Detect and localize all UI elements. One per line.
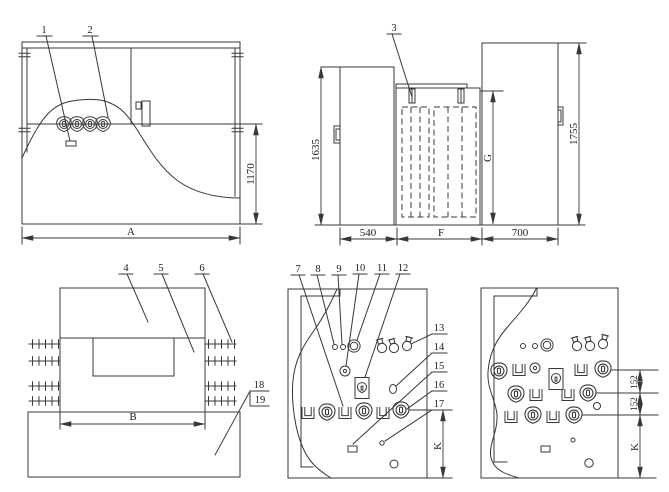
callout-number: 17 (434, 399, 445, 410)
callout-number: 7 (295, 264, 300, 275)
callout-number: 4 (123, 263, 129, 274)
dim-label: F (438, 227, 444, 239)
dim-label: 1755 (568, 123, 580, 146)
dim-label: 152 (629, 397, 639, 411)
dim-label: 700 (512, 227, 529, 239)
callout-number: 6 (199, 263, 204, 274)
dim-label: 1635 (310, 139, 322, 162)
callout-number: 3 (391, 23, 396, 34)
sheet-background (0, 0, 669, 492)
drawing-canvas: 1 2 1170 A (0, 0, 669, 492)
dim-label: 1170 (245, 163, 257, 185)
dim-label: 540 (360, 227, 377, 239)
callout-number: 15 (434, 361, 445, 372)
dim-label: B (129, 411, 136, 423)
dim-label: A (127, 226, 135, 238)
callout-number: 11 (377, 263, 387, 274)
callout-number: 18 (254, 380, 265, 391)
dim-label: K (432, 442, 444, 450)
callout-number: 1 (41, 25, 46, 36)
callout-number: 5 (158, 263, 163, 274)
callout-number: 14 (434, 342, 445, 353)
callout-number: 8 (315, 264, 320, 275)
callout-number: 9 (336, 264, 341, 275)
engineering-drawing-sheet: 1 2 1170 A (0, 0, 669, 492)
callout-number: 2 (87, 25, 92, 36)
dim-label: 152 (629, 375, 639, 389)
callout-number: 10 (355, 263, 366, 274)
callout-number: 12 (398, 263, 409, 274)
callout-number: 19 (255, 395, 266, 406)
callout-number: 13 (434, 323, 445, 334)
dim-label: G (482, 154, 494, 162)
dim-label: K (629, 443, 641, 451)
callout-number: 16 (434, 380, 445, 391)
